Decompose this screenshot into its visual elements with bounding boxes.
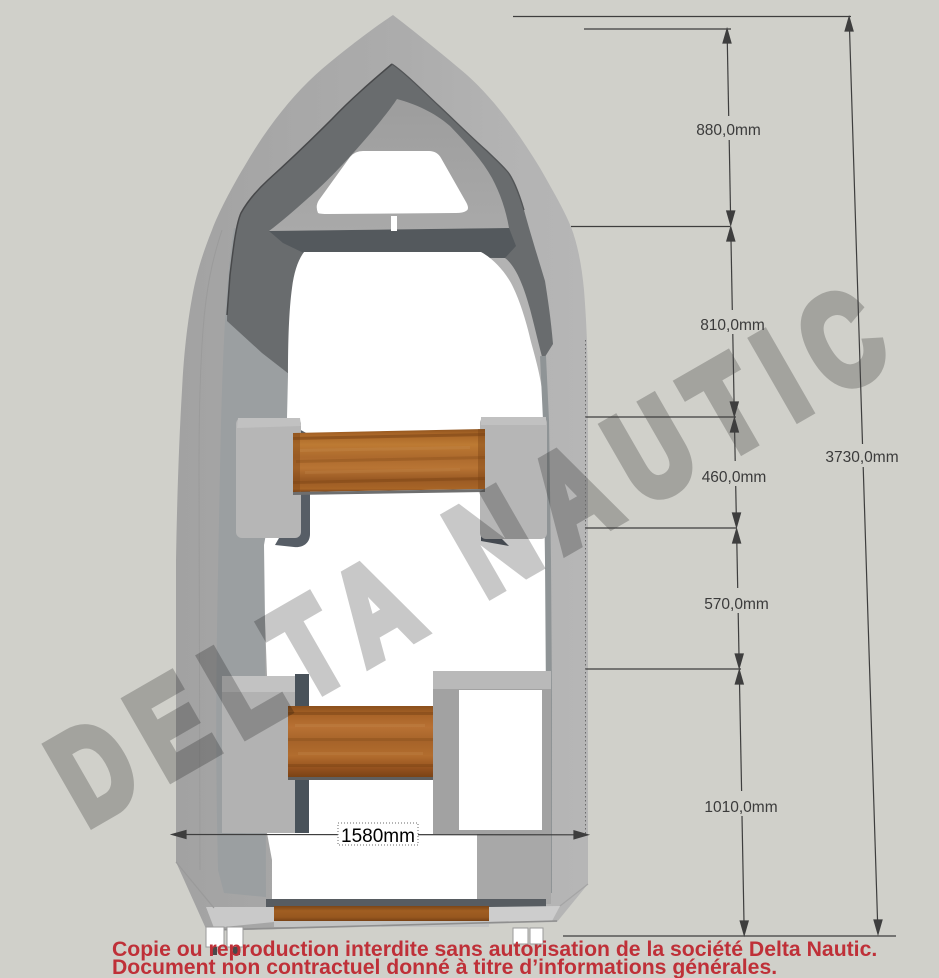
- svg-text:1580mm: 1580mm: [341, 826, 415, 847]
- svg-text:810,0mm: 810,0mm: [700, 317, 765, 334]
- svg-text:3730,0mm: 3730,0mm: [825, 449, 898, 466]
- svg-text:570,0mm: 570,0mm: [704, 596, 769, 613]
- svg-text:460,0mm: 460,0mm: [702, 469, 767, 486]
- svg-text:Document non contractuel donné: Document non contractuel donné à titre d…: [112, 956, 777, 978]
- svg-text:1010,0mm: 1010,0mm: [704, 799, 777, 816]
- svg-text:880,0mm: 880,0mm: [696, 122, 761, 139]
